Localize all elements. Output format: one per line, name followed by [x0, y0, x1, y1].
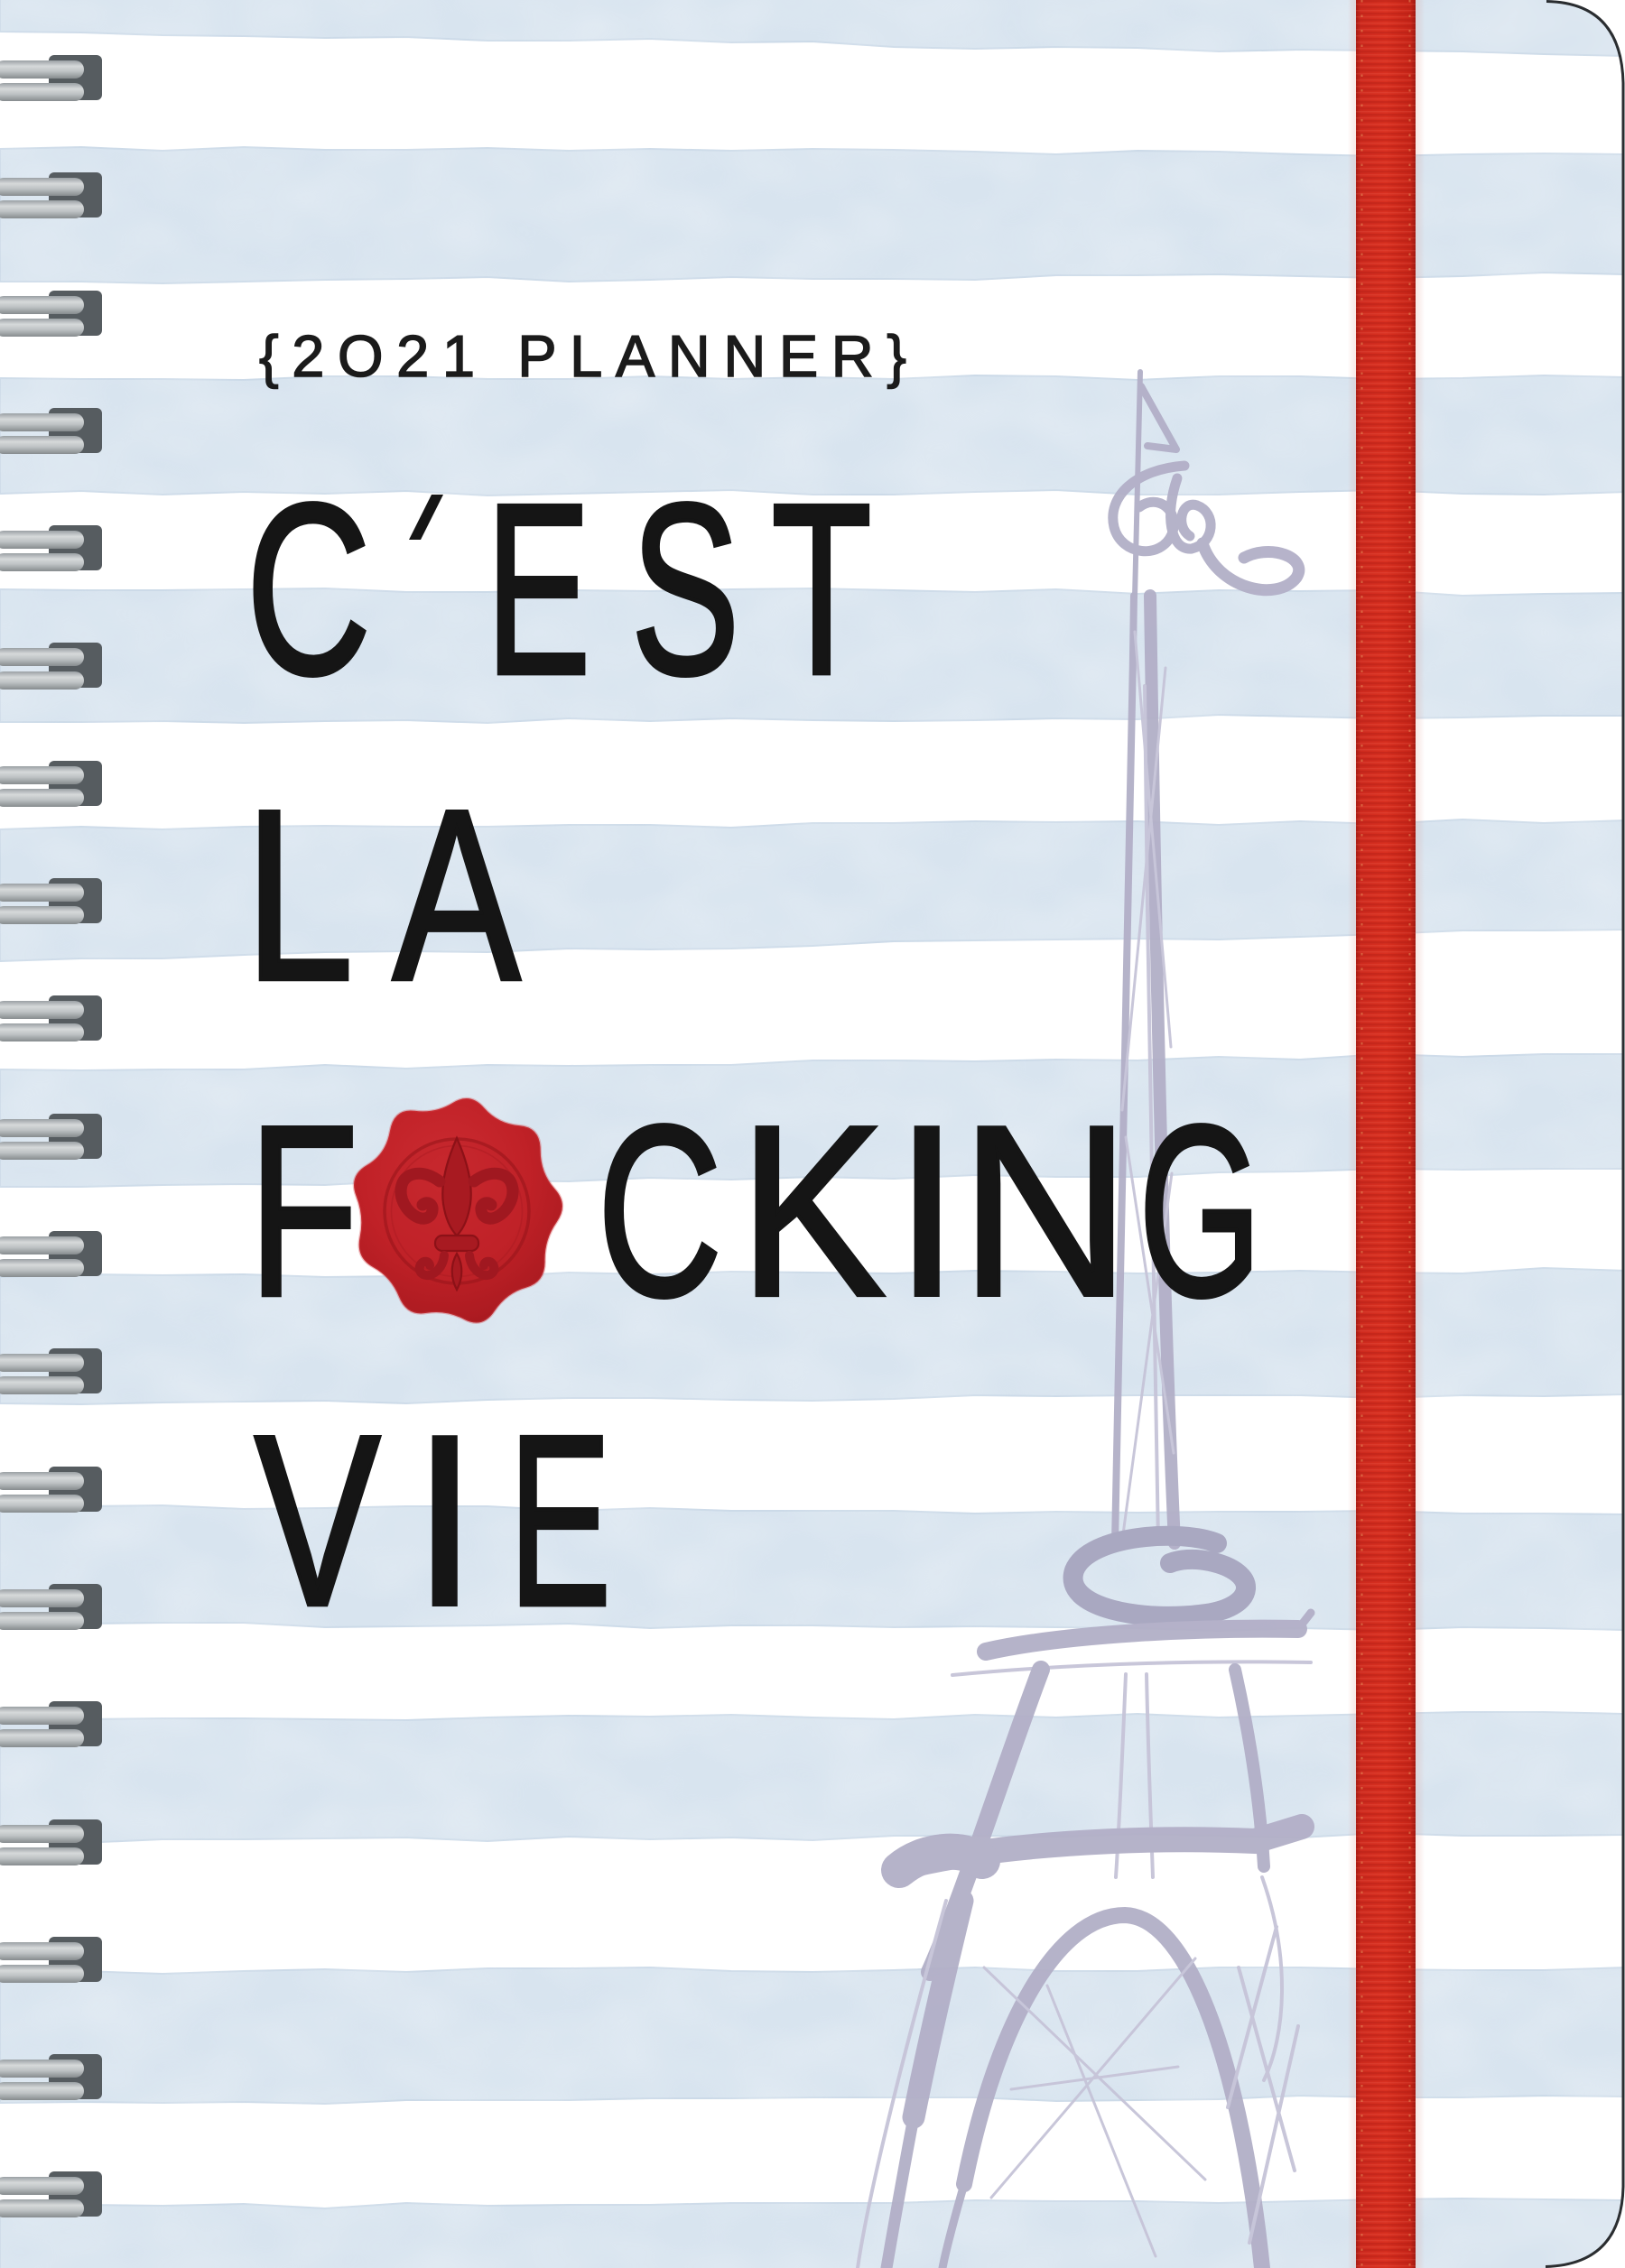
svg-text:I: I	[895, 1075, 960, 1347]
svg-text:V: V	[255, 1384, 381, 1657]
svg-text:{2O21 PLANNER}: {2O21 PLANNER}	[259, 323, 923, 389]
svg-text:E: E	[486, 453, 590, 726]
svg-text:S: S	[631, 453, 740, 726]
svg-text:F: F	[248, 1076, 358, 1347]
svg-text:I: I	[413, 1384, 478, 1657]
svg-text:A: A	[393, 760, 521, 1032]
svg-text:G: G	[1138, 1076, 1262, 1347]
svg-text:E: E	[508, 1384, 611, 1656]
svg-text:C: C	[597, 1075, 722, 1347]
svg-text:T: T	[771, 452, 871, 725]
svg-text:N: N	[960, 1076, 1131, 1347]
svg-text:C: C	[246, 453, 371, 726]
svg-text:K: K	[739, 1075, 886, 1347]
svg-text:L: L	[245, 759, 354, 1032]
